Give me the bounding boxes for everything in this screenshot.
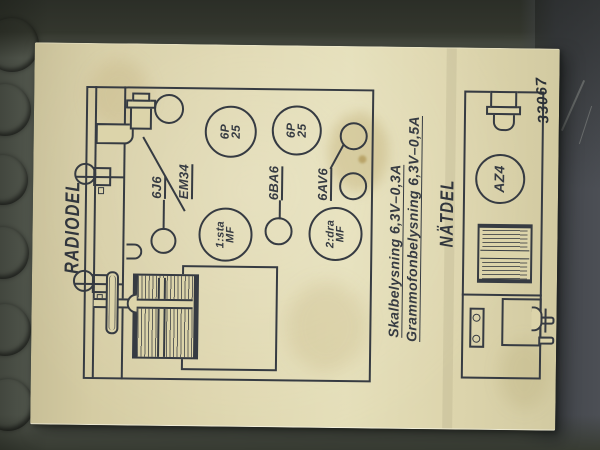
if-can-label: MF <box>335 226 346 243</box>
tube-label-6ba6: 6BA6 <box>266 166 283 201</box>
drawing-number: 33067 <box>533 76 553 124</box>
lamp-holder-tip <box>490 91 517 108</box>
plug-crossbar <box>544 309 546 333</box>
terminal-screw <box>472 335 480 343</box>
leader-line-6ba6 <box>279 200 281 219</box>
dial-pulley-disc <box>105 271 119 334</box>
magic-eye-tube-body <box>96 123 134 144</box>
caption-phono-lamp: Grammofonbelysning 6,3V–0,5A <box>403 116 423 342</box>
tube-type-label: 25 <box>231 125 243 139</box>
drum-rib <box>157 278 166 357</box>
knob-set-screw <box>98 187 104 194</box>
mounting-clip <box>126 243 142 259</box>
power-transformer <box>477 224 533 284</box>
tube-type-label: 25 <box>297 124 309 138</box>
lamp-holder-body <box>493 113 515 131</box>
schematic-paper: RADIODEL 6 <box>30 42 560 430</box>
terminal-screw <box>472 314 480 322</box>
socket-circle-6ba6 <box>264 217 292 245</box>
tube-label-em34: EM34 <box>176 164 193 199</box>
dial-pulley-inner-line <box>108 275 116 330</box>
rectifier-label: AZ4 <box>493 165 507 193</box>
plug-prong <box>540 317 554 325</box>
tube-label-6j6: 6J6 <box>149 176 166 199</box>
radiodel-title: RADIODEL <box>62 181 86 274</box>
leader-line-6j6 <box>163 200 165 230</box>
magic-eye-nub <box>132 93 150 102</box>
caption-dial-lamp: Skalbelysning 6,3V–0,3A <box>385 164 404 338</box>
transformer-bobbin-gap <box>480 250 529 260</box>
tube-label-6av6: 6AV6 <box>315 168 332 201</box>
control-knob-block <box>93 167 111 186</box>
natdel-title: NÄTDEL <box>436 179 458 247</box>
plug-prong <box>538 336 554 344</box>
photo-scene: RADIODEL 6 <box>0 0 600 450</box>
if-can-label: MF <box>225 226 236 243</box>
socket-circle-6j6 <box>150 228 176 254</box>
